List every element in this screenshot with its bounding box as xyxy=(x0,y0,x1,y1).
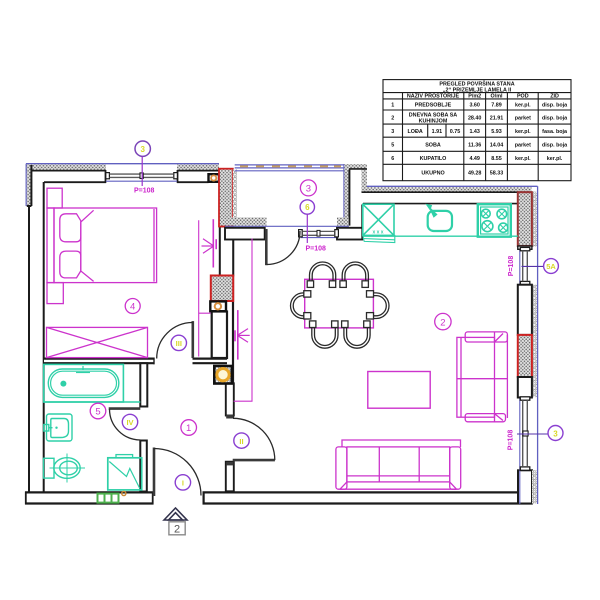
svg-text:P/m2: P/m2 xyxy=(468,94,481,100)
svg-text:2: 2 xyxy=(391,115,394,121)
svg-text:6: 6 xyxy=(305,203,310,212)
svg-text:5: 5 xyxy=(95,407,100,418)
svg-text:IV: IV xyxy=(126,418,133,427)
svg-text:PREDSOBLJE: PREDSOBLJE xyxy=(415,103,452,109)
svg-text:UKUPNO: UKUPNO xyxy=(421,171,444,177)
svg-text:21.91: 21.91 xyxy=(490,115,504,121)
svg-text:parket: parket xyxy=(515,142,531,148)
svg-text:KUHINJOM: KUHINJOM xyxy=(419,119,448,125)
svg-text:5: 5 xyxy=(391,142,394,148)
svg-text:28.40: 28.40 xyxy=(468,115,482,121)
svg-text:4.49: 4.49 xyxy=(469,156,480,162)
svg-text:I: I xyxy=(182,479,184,488)
svg-text:1: 1 xyxy=(186,423,191,434)
svg-text:POD: POD xyxy=(517,94,529,100)
svg-text:P=108: P=108 xyxy=(508,430,515,451)
svg-text:3: 3 xyxy=(140,145,145,154)
svg-text:III: III xyxy=(176,339,182,348)
svg-text:x x x: x x x xyxy=(372,230,383,236)
svg-text:3: 3 xyxy=(391,129,394,135)
svg-text:1: 1 xyxy=(391,103,394,109)
svg-text:NAZIV PROSTORIJE: NAZIV PROSTORIJE xyxy=(407,94,460,100)
svg-text:ZID: ZID xyxy=(550,94,559,100)
svg-text:ker.pl.: ker.pl. xyxy=(515,103,531,109)
svg-text:disp. boja: disp. boja xyxy=(542,115,568,121)
svg-text:14.04: 14.04 xyxy=(490,142,504,148)
svg-text:0.75: 0.75 xyxy=(450,129,461,135)
svg-text:58.33: 58.33 xyxy=(490,171,504,177)
svg-text:PREGLED POVRŠINA STANA: PREGLED POVRŠINA STANA xyxy=(439,79,514,87)
svg-text:P=108: P=108 xyxy=(134,187,155,194)
svg-text:1.91: 1.91 xyxy=(432,129,443,135)
svg-text:disp. boja: disp. boja xyxy=(542,142,568,148)
svg-text:3: 3 xyxy=(553,429,558,438)
svg-text:2: 2 xyxy=(174,524,180,536)
svg-text:5A: 5A xyxy=(546,262,556,271)
svg-text:P=108: P=108 xyxy=(306,246,327,253)
svg-text:P=108: P=108 xyxy=(508,256,515,277)
svg-text:KUPATILO: KUPATILO xyxy=(420,156,447,162)
svg-text:5.93: 5.93 xyxy=(491,129,502,135)
svg-text:ker.pl.: ker.pl. xyxy=(547,156,563,162)
svg-text:DNEVNA SOBA SA: DNEVNA SOBA SA xyxy=(409,112,458,118)
svg-text:„2“ PRIZEMLJE LAMELA II: „2“ PRIZEMLJE LAMELA II xyxy=(443,87,512,93)
svg-text:II: II xyxy=(239,437,243,446)
svg-text:4: 4 xyxy=(130,301,135,312)
svg-text:3.60: 3.60 xyxy=(469,103,480,109)
svg-text:LOĐA: LOĐA xyxy=(407,129,422,135)
svg-text:O/ml: O/ml xyxy=(491,94,503,100)
svg-text:SOBA: SOBA xyxy=(425,142,441,148)
svg-text:7.89: 7.89 xyxy=(491,103,502,109)
svg-text:6: 6 xyxy=(391,156,394,162)
svg-text:8.55: 8.55 xyxy=(491,156,502,162)
svg-text:2: 2 xyxy=(440,317,445,328)
svg-text:1.43: 1.43 xyxy=(469,129,480,135)
svg-text:ker.pl.: ker.pl. xyxy=(515,156,531,162)
svg-text:11.36: 11.36 xyxy=(468,142,481,148)
svg-text:fasa. boja: fasa. boja xyxy=(542,129,568,135)
svg-text:disp. boja: disp. boja xyxy=(542,103,568,109)
svg-text:ker.pl.: ker.pl. xyxy=(515,129,531,135)
svg-text:49.28: 49.28 xyxy=(468,171,482,177)
svg-text:parket: parket xyxy=(515,115,531,121)
svg-text:3: 3 xyxy=(306,184,311,195)
